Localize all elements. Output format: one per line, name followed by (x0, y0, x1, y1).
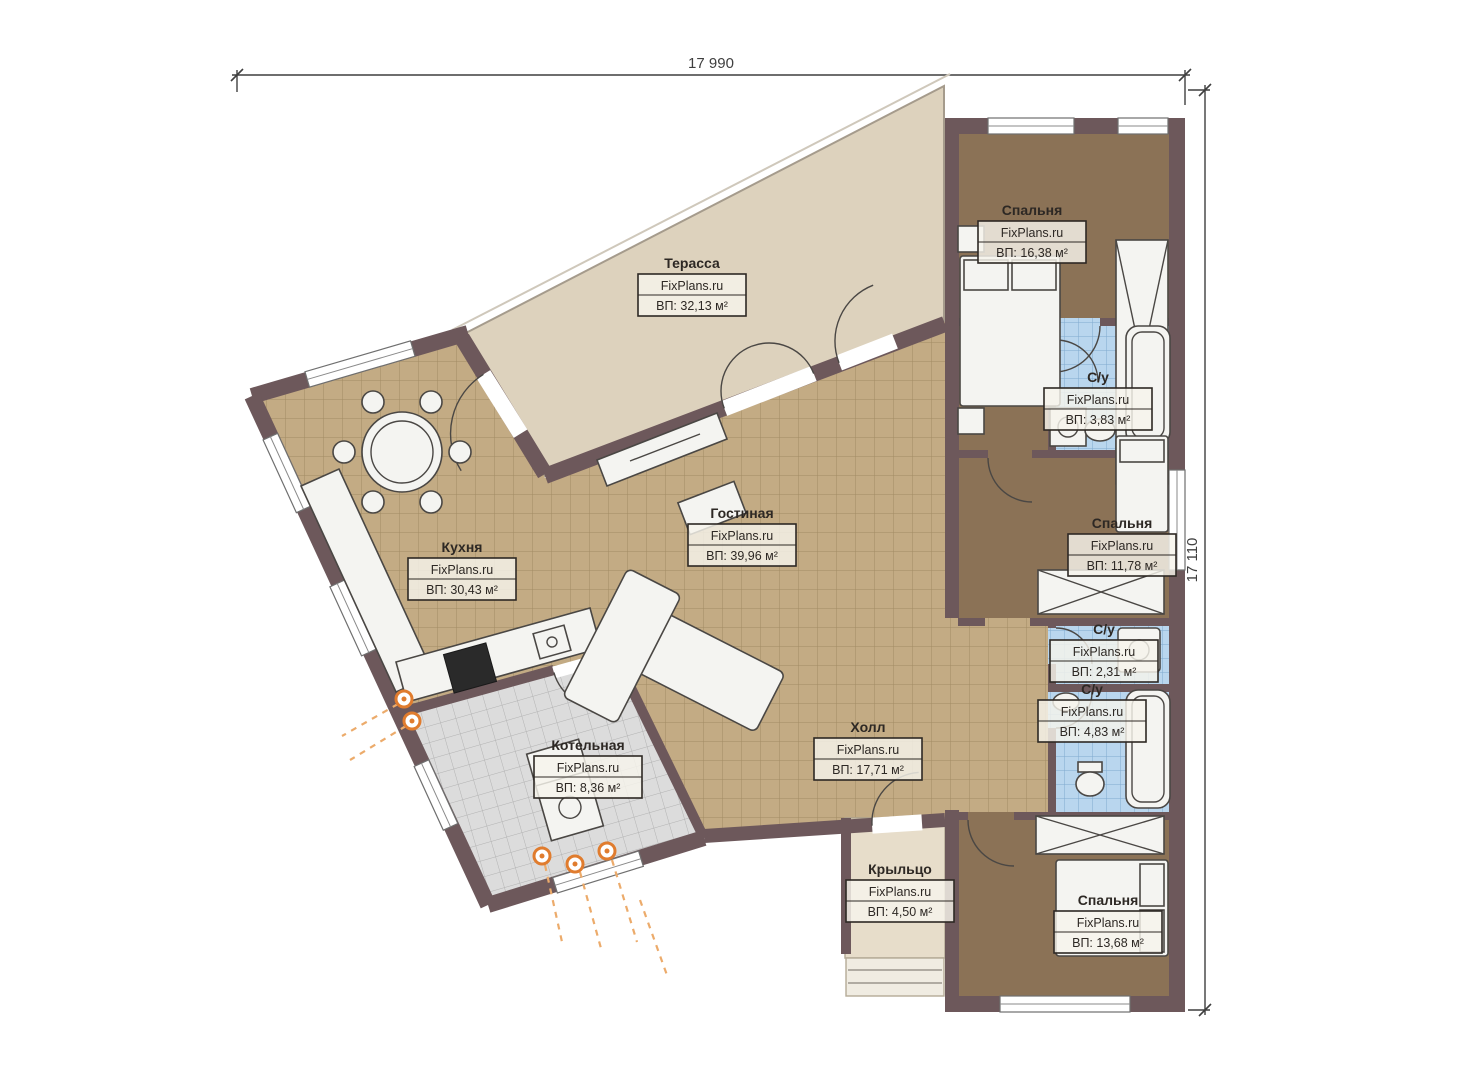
chair (420, 391, 442, 413)
room-brand: FixPlans.ru (661, 279, 724, 293)
room-area: ВП: 4,83 м² (1060, 725, 1125, 739)
wall (1048, 618, 1056, 628)
floor-plan-canvas: 17 990 17 110 (0, 0, 1473, 1080)
nightstand (958, 408, 984, 434)
room-name: Котельная (551, 737, 624, 753)
wall (945, 118, 959, 322)
room-brand: FixPlans.ru (1091, 539, 1154, 553)
room-area: ВП: 17,71 м² (832, 763, 904, 777)
utility-point (599, 843, 615, 859)
wall (958, 450, 988, 458)
room-name: Кухня (442, 539, 483, 555)
pillow (964, 260, 1008, 290)
room-name: Спальня (1002, 202, 1062, 218)
window (988, 118, 1074, 134)
room-brand: FixPlans.ru (557, 761, 620, 775)
room-area: ВП: 4,50 м² (868, 905, 933, 919)
room-area: ВП: 2,31 м² (1072, 665, 1137, 679)
dimension-top-value: 17 990 (688, 55, 734, 72)
chair (362, 391, 384, 413)
room-area: ВП: 39,96 м² (706, 549, 778, 563)
room-area: ВП: 32,13 м² (656, 299, 728, 313)
wall (958, 812, 968, 820)
room-brand: FixPlans.ru (1061, 705, 1124, 719)
utility-dash-line (350, 726, 406, 760)
utility-dash-line (580, 872, 602, 952)
utility-point (404, 713, 420, 729)
room-area: ВП: 16,38 м² (996, 246, 1068, 260)
window (1118, 118, 1168, 134)
utility-point (567, 856, 583, 872)
chair (362, 491, 384, 513)
room-brand: FixPlans.ru (1067, 393, 1130, 407)
wall (958, 618, 985, 626)
room-brand: FixPlans.ru (431, 563, 494, 577)
room-area: ВП: 13,68 м² (1072, 936, 1144, 950)
toilet-tank (1078, 762, 1102, 772)
room-area: ВП: 8,36 м² (556, 781, 621, 795)
room-name: Холл (850, 719, 885, 735)
window (1000, 996, 1130, 1012)
room-name: С/у (1087, 369, 1109, 385)
room-brand: FixPlans.ru (869, 885, 932, 899)
pillow (1140, 864, 1164, 906)
room-name: С/у (1081, 681, 1103, 697)
porch-steps-block (846, 958, 944, 996)
chair (420, 491, 442, 513)
dimension-right-value: 17 110 (1184, 538, 1201, 583)
room-brand: FixPlans.ru (837, 743, 900, 757)
floor-plan-svg: 17 990 17 110 (0, 0, 1473, 1080)
room-brand: FixPlans.ru (1077, 916, 1140, 930)
toilet (1076, 772, 1104, 796)
utility-dash-line (640, 900, 668, 978)
room-brand: FixPlans.ru (711, 529, 774, 543)
room-name: Спальня (1078, 892, 1138, 908)
utility-point (396, 691, 412, 707)
pillow (1012, 260, 1056, 290)
wall (945, 322, 959, 618)
room-name: Крыльцо (868, 861, 932, 877)
room-area: ВП: 11,78 м² (1087, 559, 1158, 573)
chair (449, 441, 471, 463)
room-brand: FixPlans.ru (1073, 645, 1136, 659)
chair (333, 441, 355, 463)
dimension-right: 17 110 (1184, 84, 1211, 1016)
dining-table (362, 412, 442, 492)
dimension-top: 17 990 (231, 55, 1191, 105)
room-name: Терасса (664, 255, 720, 271)
utility-point (534, 848, 550, 864)
pillow (1120, 440, 1164, 462)
room-name: Спальня (1092, 515, 1152, 531)
room-brand: FixPlans.ru (1001, 226, 1064, 240)
room-name: С/у (1093, 621, 1115, 637)
room-name: Гостиная (710, 505, 773, 521)
room-area: ВП: 30,43 м² (426, 583, 498, 597)
porch-steps (846, 958, 944, 996)
room-area: ВП: 3,83 м² (1066, 413, 1131, 427)
